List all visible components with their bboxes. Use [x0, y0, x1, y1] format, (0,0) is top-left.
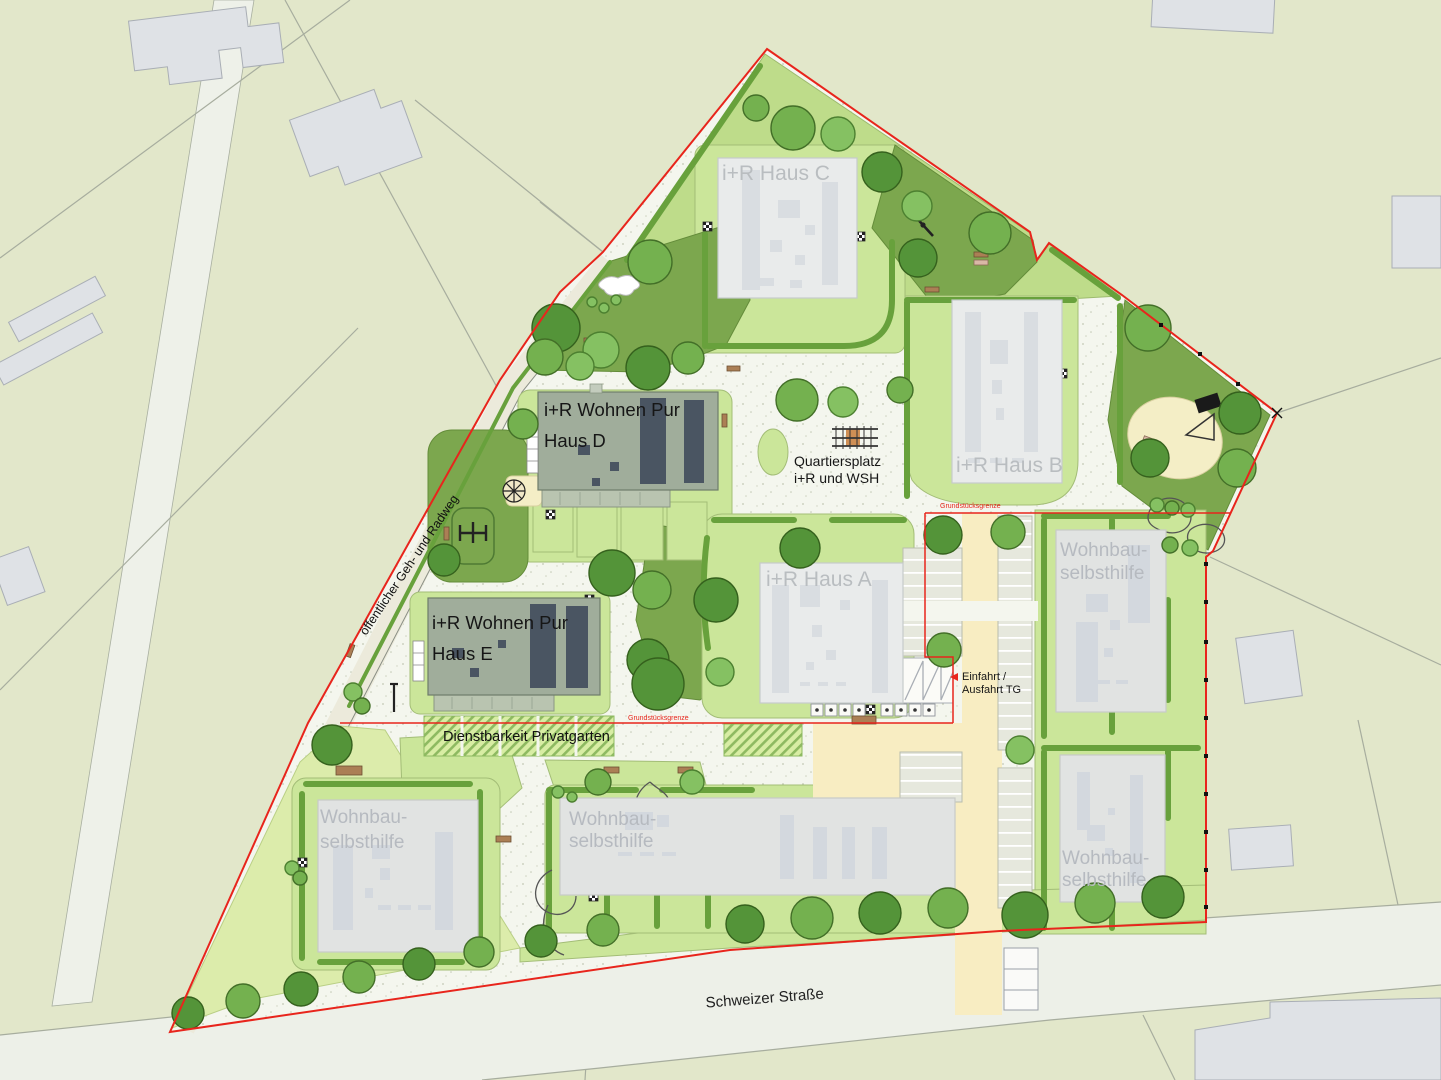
haus-e-label-line1: i+R Wohnen Pur — [432, 612, 568, 633]
tree-icon — [585, 769, 611, 795]
utility-cover-icon — [866, 705, 875, 714]
tree-icon — [1131, 439, 1169, 477]
tree-icon — [672, 342, 704, 374]
tree-icon — [821, 117, 855, 151]
bush-icon — [1182, 540, 1198, 556]
tree-icon — [969, 212, 1011, 254]
haus-a-label: i+R Haus A — [766, 568, 872, 591]
tree-icon — [628, 240, 672, 284]
tree-icon — [928, 888, 968, 928]
bush-icon — [1181, 503, 1195, 517]
tree-icon — [859, 892, 901, 934]
tree-icon — [706, 658, 734, 686]
tree-icon — [927, 633, 961, 667]
crosswalk — [898, 601, 1038, 621]
tree-icon — [508, 409, 538, 439]
bush-icon — [611, 295, 621, 305]
wsh-e-lower-label-line2: selbsthilfe — [1062, 870, 1147, 891]
east-gardens — [724, 724, 802, 756]
haus-c-label: i+R Haus C — [722, 162, 830, 185]
quartiersplatz-label-line1: Quartiersplatz — [794, 453, 881, 469]
bush-icon — [1162, 537, 1178, 553]
tree-icon — [589, 550, 635, 596]
tree-icon — [776, 379, 818, 421]
bush-icon — [599, 303, 609, 313]
tree-icon — [428, 544, 460, 576]
tree-icon — [527, 339, 563, 375]
wsh-s-label-line1: Wohnbau- — [569, 809, 656, 830]
carousel-icon — [503, 480, 525, 502]
tree-icon — [172, 997, 204, 1029]
tree-icon — [1006, 736, 1034, 764]
wsh-sw-label-line1: Wohnbau- — [320, 807, 407, 828]
einfahrt-label-line1: Einfahrt / — [962, 671, 1007, 683]
tree-icon — [312, 725, 352, 765]
einfahrt-label-line2: Ausfahrt TG — [962, 684, 1021, 696]
bike-stands — [811, 704, 935, 716]
dienstbarkeit-label: Dienstbarkeit Privatgarten — [443, 729, 610, 745]
parking-stalls-w2 — [900, 752, 962, 802]
bush-icon — [567, 792, 577, 802]
tree-icon — [1218, 449, 1256, 487]
tree-icon — [991, 515, 1025, 549]
tree-icon — [626, 346, 670, 390]
tree-icon — [633, 571, 671, 609]
tree-icon — [284, 972, 318, 1006]
tree-icon — [743, 95, 769, 121]
haus-d-label-line2: Haus D — [544, 430, 606, 451]
haus-b-label: i+R Haus B — [956, 454, 1063, 477]
tree-icon — [525, 925, 557, 957]
tree-icon — [887, 377, 913, 403]
tree-icon — [791, 897, 833, 939]
wsh-e-upper-label-line1: Wohnbau- — [1060, 540, 1147, 561]
quartiersplatz-label-line2: i+R und WSH — [794, 470, 879, 486]
parking-stalls-e3 — [998, 768, 1032, 908]
site-plan-canvas: i+R Haus C i+R Haus B i+R Haus A i+R Woh… — [0, 0, 1441, 1080]
tree-icon — [403, 948, 435, 980]
pergola-icon — [832, 426, 878, 449]
bush-icon — [293, 871, 307, 885]
wsh-e-lower-label-line1: Wohnbau- — [1062, 848, 1149, 869]
bush-icon — [1150, 498, 1164, 512]
site-plan: i+R Haus C i+R Haus B i+R Haus A i+R Woh… — [0, 0, 1441, 1080]
tree-icon — [694, 578, 738, 622]
tree-icon — [726, 905, 764, 943]
wsh-e-upper-label-line2: selbsthilfe — [1060, 563, 1145, 584]
tree-icon — [343, 961, 375, 993]
wsh-s-label-line2: selbsthilfe — [569, 831, 654, 852]
tree-icon — [902, 191, 932, 221]
grenze-label-2: Grundstücksgrenze — [628, 715, 689, 722]
tree-icon — [1142, 876, 1184, 918]
bush-icon — [587, 297, 597, 307]
bush-icon — [552, 786, 564, 798]
tree-icon — [680, 770, 704, 794]
tree-icon — [899, 239, 937, 277]
wsh-sw-label-line2: selbsthilfe — [320, 832, 405, 853]
tree-icon — [464, 937, 494, 967]
tree-icon — [924, 516, 962, 554]
tree-icon — [632, 658, 684, 710]
tree-icon — [862, 152, 902, 192]
tree-icon — [226, 984, 260, 1018]
bush-icon — [354, 698, 370, 714]
garage-boxes — [1004, 948, 1038, 1010]
plaza-oval-lawn — [758, 429, 788, 475]
tree-icon — [566, 352, 594, 380]
tree-icon — [828, 387, 858, 417]
grenze-label-1: Grundstücksgrenze — [940, 503, 1001, 510]
tree-icon — [587, 914, 619, 946]
haus-e-label-line2: Haus E — [432, 643, 493, 664]
tree-icon — [780, 528, 820, 568]
tree-icon — [1219, 392, 1261, 434]
tree-icon — [771, 106, 815, 150]
haus-d-label-line1: i+R Wohnen Pur — [544, 399, 680, 420]
